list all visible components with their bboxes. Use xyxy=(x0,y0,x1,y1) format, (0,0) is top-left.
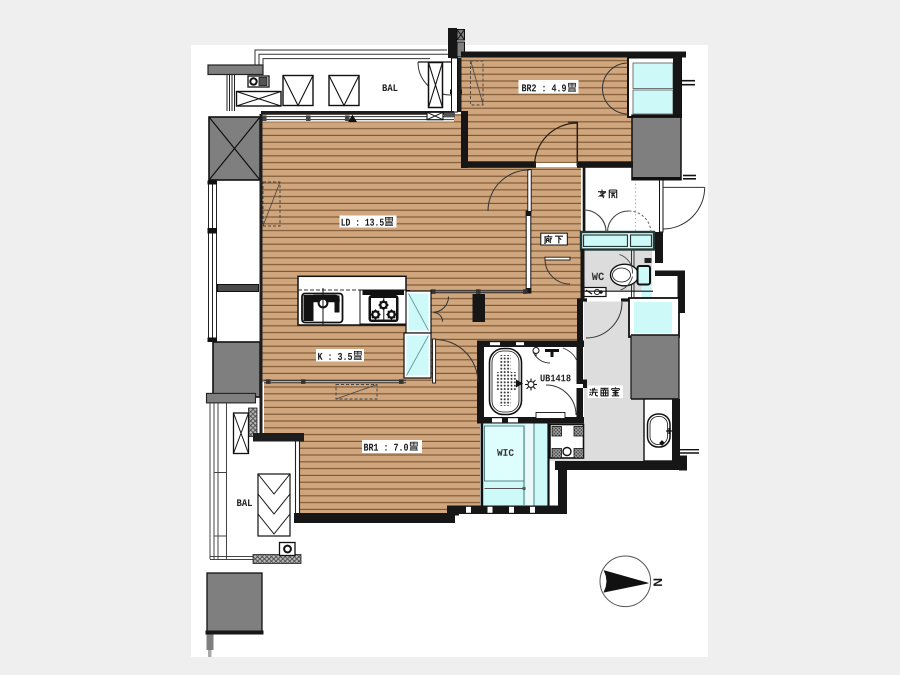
svg-text:BAL: BAL xyxy=(236,499,252,510)
svg-text:LD : 13.5: LD : 13.5 xyxy=(341,218,385,230)
svg-text:WC: WC xyxy=(592,272,605,284)
svg-text:UB1418: UB1418 xyxy=(540,374,571,385)
svg-text:K : 3.5: K : 3.5 xyxy=(317,352,352,364)
svg-text:BR2 : 4.9: BR2 : 4.9 xyxy=(521,83,566,95)
svg-text:WIC: WIC xyxy=(497,449,514,460)
svg-text:N: N xyxy=(651,578,665,587)
svg-text:BAL: BAL xyxy=(382,84,398,95)
svg-text:BR1 : 7.0: BR1 : 7.0 xyxy=(363,443,408,455)
